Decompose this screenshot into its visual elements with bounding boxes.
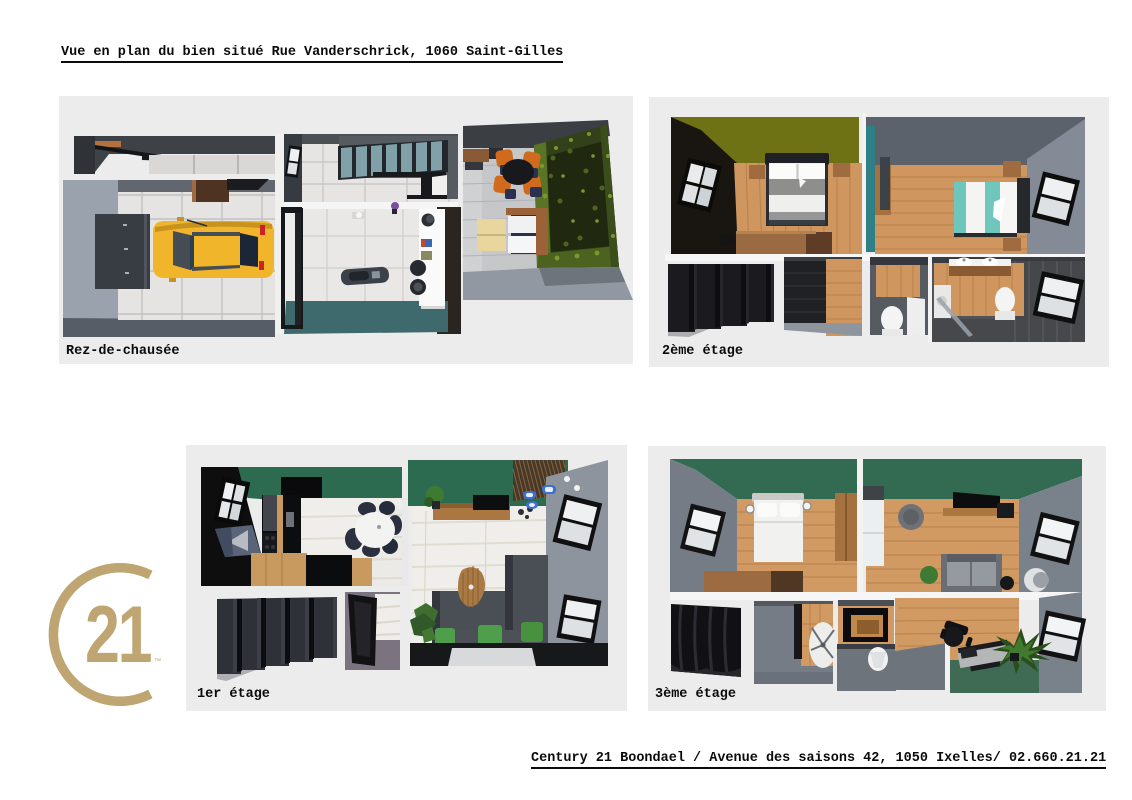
svg-text:21: 21 bbox=[85, 591, 152, 680]
svg-text:™: ™ bbox=[154, 658, 161, 665]
